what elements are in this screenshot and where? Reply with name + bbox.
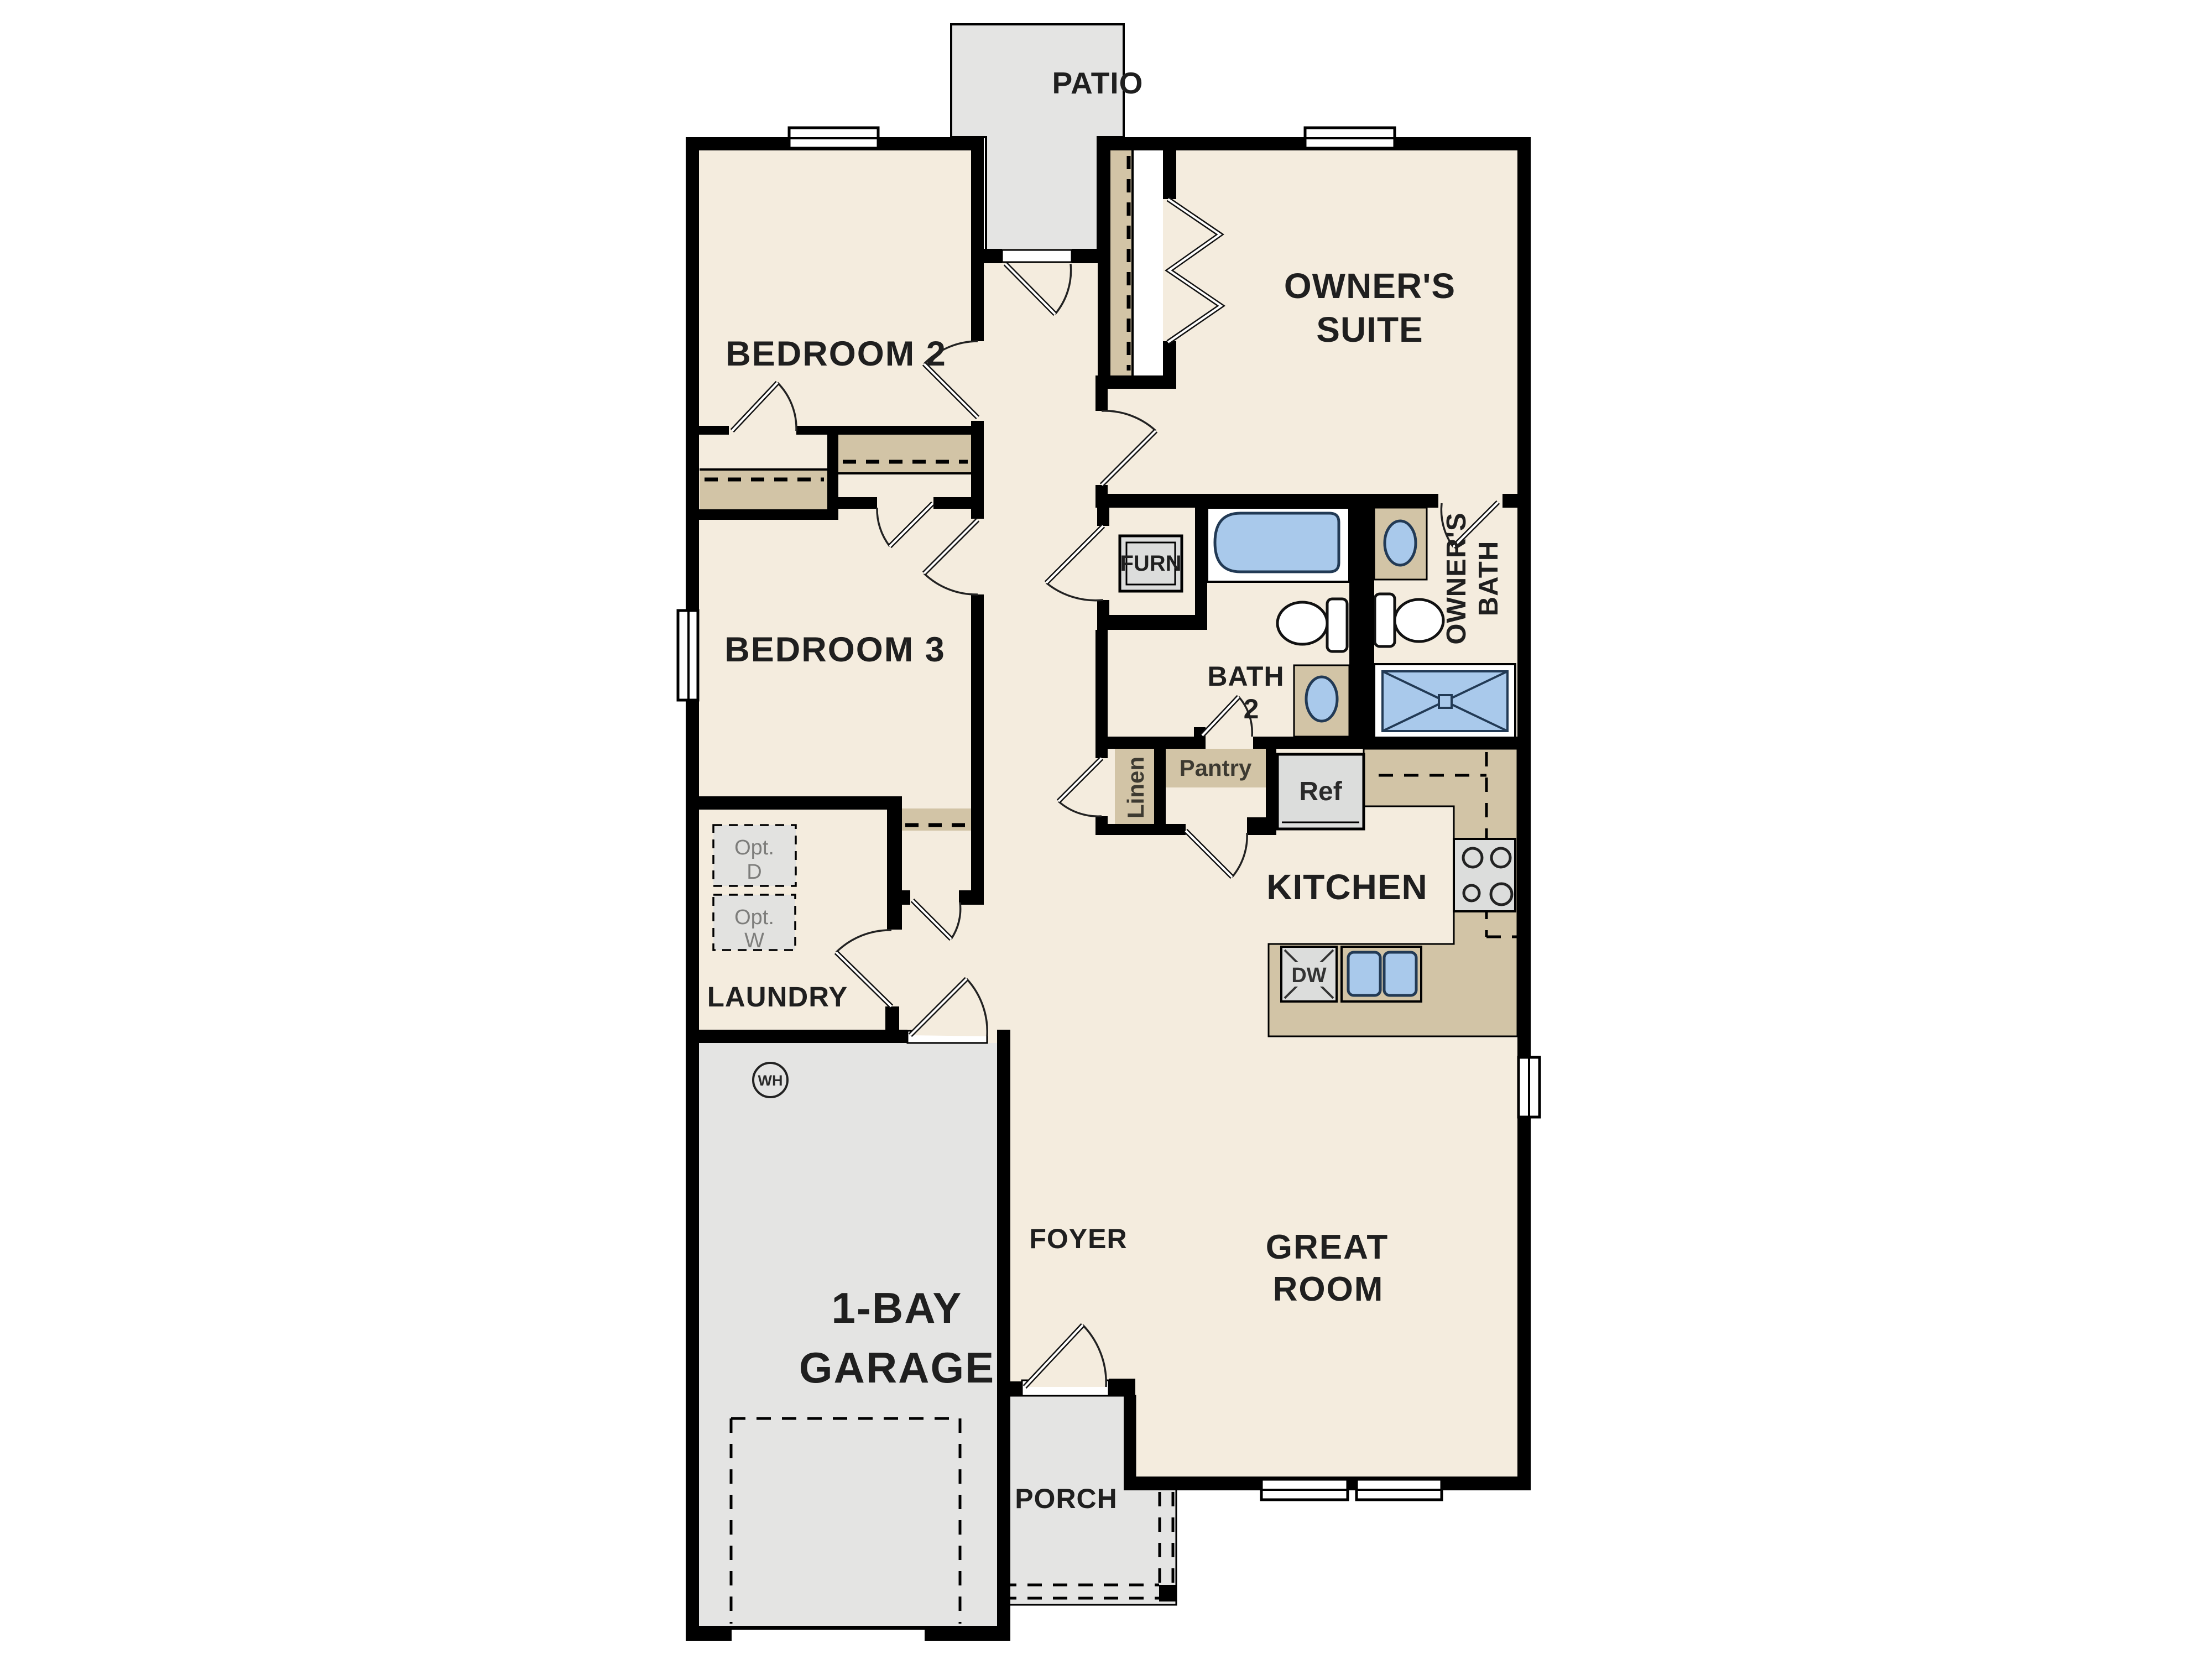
svg-text:GARAGE: GARAGE bbox=[799, 1343, 995, 1392]
svg-text:BEDROOM 2: BEDROOM 2 bbox=[726, 335, 947, 373]
svg-text:W: W bbox=[744, 929, 764, 952]
svg-text:FURN: FURN bbox=[1120, 551, 1181, 576]
svg-text:SUITE: SUITE bbox=[1316, 310, 1423, 349]
svg-text:GREAT: GREAT bbox=[1266, 1228, 1389, 1266]
svg-text:BATH: BATH bbox=[1207, 661, 1284, 692]
svg-text:Pantry: Pantry bbox=[1180, 755, 1252, 781]
svg-text:D: D bbox=[747, 860, 761, 884]
svg-text:ROOM: ROOM bbox=[1273, 1270, 1384, 1308]
svg-text:PATIO: PATIO bbox=[1052, 66, 1144, 100]
svg-text:KITCHEN: KITCHEN bbox=[1266, 867, 1427, 907]
svg-text:LAUNDRY: LAUNDRY bbox=[707, 981, 848, 1013]
svg-text:2: 2 bbox=[1244, 693, 1260, 724]
svg-text:1-BAY: 1-BAY bbox=[832, 1284, 963, 1332]
svg-text:BEDROOM 3: BEDROOM 3 bbox=[724, 630, 946, 669]
svg-text:PORCH: PORCH bbox=[1015, 1483, 1118, 1514]
svg-text:BATH: BATH bbox=[1474, 541, 1504, 616]
svg-text:Opt.: Opt. bbox=[734, 836, 774, 859]
svg-text:WH: WH bbox=[758, 1072, 783, 1089]
svg-text:OWNER'S: OWNER'S bbox=[1284, 266, 1455, 306]
svg-text:Linen: Linen bbox=[1123, 757, 1149, 818]
svg-text:OWNER'S: OWNER'S bbox=[1442, 512, 1472, 644]
svg-text:DW: DW bbox=[1291, 964, 1326, 987]
svg-text:Opt.: Opt. bbox=[734, 906, 774, 929]
svg-text:Ref: Ref bbox=[1299, 777, 1342, 806]
svg-text:FOYER: FOYER bbox=[1029, 1223, 1127, 1254]
